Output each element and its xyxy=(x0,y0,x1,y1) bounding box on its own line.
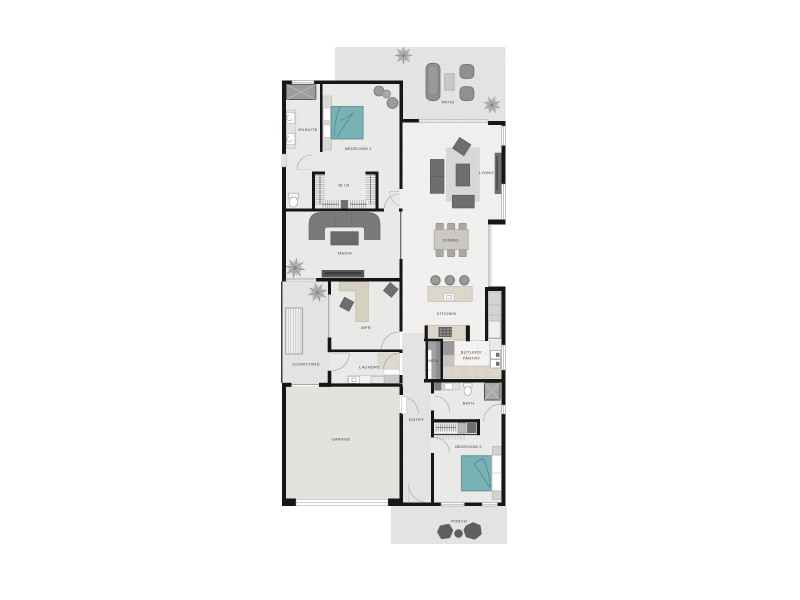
svg-text:PATIO: PATIO xyxy=(442,100,455,105)
svg-text:LIVING: LIVING xyxy=(479,170,494,175)
svg-text:DINING: DINING xyxy=(443,238,459,243)
svg-text:BUTLERS': BUTLERS' xyxy=(461,350,482,355)
svg-text:COURTYARD: COURTYARD xyxy=(292,362,320,367)
svg-text:BEDROOM 2: BEDROOM 2 xyxy=(455,444,482,449)
svg-text:MPR: MPR xyxy=(361,325,371,330)
svg-text:MEDIA: MEDIA xyxy=(338,251,352,256)
svg-text:LAUNDRY: LAUNDRY xyxy=(359,365,380,370)
svg-text:ENSUITE: ENSUITE xyxy=(298,127,317,132)
svg-text:ENTRY: ENTRY xyxy=(409,417,424,422)
svg-text:LINEN: LINEN xyxy=(425,358,438,363)
svg-text:BEDROOM 1: BEDROOM 1 xyxy=(345,146,372,151)
svg-text:KITCHEN: KITCHEN xyxy=(437,311,457,316)
svg-text:PORCH: PORCH xyxy=(451,519,467,524)
svg-text:GARAGE: GARAGE xyxy=(332,437,351,442)
svg-text:PANTRY: PANTRY xyxy=(463,356,481,361)
svg-text:BATH: BATH xyxy=(463,401,475,406)
svg-text:W.I.R: W.I.R xyxy=(338,183,349,188)
